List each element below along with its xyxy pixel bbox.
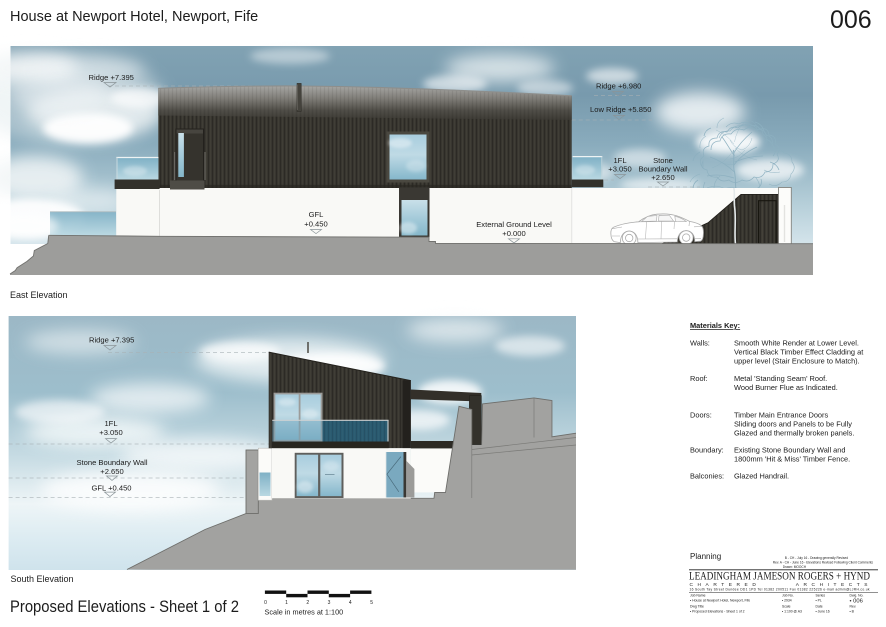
svg-text:1FL: 1FL bbox=[104, 419, 117, 428]
svg-text:External Ground Level: External Ground Level bbox=[476, 220, 552, 229]
svg-text:Boundary:: Boundary: bbox=[690, 446, 724, 455]
svg-text:Glazed and thermally broken pa: Glazed and thermally broken panels. bbox=[734, 429, 854, 438]
svg-text:GFL +0.450: GFL +0.450 bbox=[92, 484, 132, 493]
svg-text:• 1:100 @ A3: • 1:100 @ A3 bbox=[782, 610, 802, 614]
svg-text:South Elevation: South Elevation bbox=[11, 574, 74, 584]
svg-text:Series: Series bbox=[816, 594, 826, 598]
svg-text:Doors:: Doors: bbox=[690, 411, 712, 420]
svg-text:Smooth White Render at Lower L: Smooth White Render at Lower Level. bbox=[734, 339, 859, 348]
svg-text:B - CH - July 16 - Drawing ge: B - CH - July 16 - Drawing generally Rev… bbox=[785, 556, 848, 560]
svg-text:+3.050: +3.050 bbox=[99, 428, 122, 437]
svg-text:Job No.: Job No. bbox=[782, 594, 794, 598]
svg-text:• House at Newport Hotel, New: • House at Newport Hotel, Newport, Fife bbox=[690, 599, 750, 603]
svg-text:Sliding doors and Panels to be: Sliding doors and Panels to be Fully bbox=[734, 420, 852, 429]
svg-text:upper level (Stair Enclosure t: upper level (Stair Enclosure to Match). bbox=[734, 357, 860, 366]
svg-text:Scale: Scale bbox=[782, 605, 791, 609]
svg-text:006: 006 bbox=[830, 6, 872, 34]
svg-text:Proposed Elevations - Sheet 1: Proposed Elevations - Sheet 1 of 2 bbox=[10, 598, 239, 616]
svg-text:+0.450: +0.450 bbox=[304, 220, 327, 229]
svg-text:3: 3 bbox=[328, 600, 331, 606]
svg-text:+3.050: +3.050 bbox=[608, 165, 631, 174]
svg-text:Wood Burner Flue as Indicated.: Wood Burner Flue as Indicated. bbox=[734, 383, 838, 392]
svg-text:• 006: • 006 bbox=[850, 599, 863, 605]
svg-text:Ridge +7.395: Ridge +7.395 bbox=[89, 73, 134, 82]
svg-text:Glazed Handrail.: Glazed Handrail. bbox=[734, 472, 789, 481]
svg-text:Balconies:: Balconies: bbox=[690, 472, 724, 481]
svg-text:Ridge +6.980: Ridge +6.980 bbox=[596, 82, 641, 91]
svg-text:LEADINGHAM JAMESON ROGERS + HY: LEADINGHAM JAMESON ROGERS + HYND bbox=[689, 569, 870, 583]
svg-text:Low Ridge +5.850: Low Ridge +5.850 bbox=[590, 105, 651, 114]
svg-text:1: 1 bbox=[285, 600, 288, 606]
svg-text:Dwg Title: Dwg Title bbox=[690, 605, 704, 609]
svg-text:East Elevation: East Elevation bbox=[10, 290, 68, 300]
svg-text:4: 4 bbox=[349, 600, 352, 606]
svg-text:+0.000: +0.000 bbox=[502, 229, 525, 238]
svg-text:• 2934: • 2934 bbox=[782, 599, 792, 603]
svg-text:• B: • B bbox=[850, 610, 855, 614]
svg-text:Roof:: Roof: bbox=[690, 374, 708, 383]
svg-text:Date: Date bbox=[816, 605, 823, 609]
svg-text:Materials Key:: Materials Key: bbox=[690, 321, 740, 330]
svg-text:• June 16: • June 16 bbox=[816, 610, 830, 614]
svg-text:0: 0 bbox=[264, 600, 267, 606]
svg-text:Scale in metres at 1:100: Scale in metres at 1:100 bbox=[265, 608, 344, 617]
svg-text:5: 5 bbox=[370, 600, 373, 606]
svg-text:Timber Main Entrance Doors: Timber Main Entrance Doors bbox=[734, 411, 828, 420]
svg-text:Vertical Black Timber Effect C: Vertical Black Timber Effect Cladding at bbox=[734, 348, 863, 357]
svg-text:Metal 'Standing Seam' Roof.: Metal 'Standing Seam' Roof. bbox=[734, 374, 827, 383]
svg-text:2: 2 bbox=[306, 600, 309, 606]
svg-text:• Proposed Elevations - Sheet: • Proposed Elevations - Sheet 1 of 2 bbox=[690, 610, 745, 614]
svg-text:16 South Tay Street Dundee DD: 16 South Tay Street Dundee DD1 1PD Tel 0… bbox=[690, 588, 870, 592]
svg-text:GFL: GFL bbox=[309, 210, 324, 219]
svg-text:Job Name: Job Name bbox=[690, 594, 706, 598]
svg-text:Stone Boundary Wall: Stone Boundary Wall bbox=[76, 458, 147, 467]
svg-text:+2.650: +2.650 bbox=[100, 467, 123, 476]
svg-text:House at Newport Hotel, Newpor: House at Newport Hotel, Newport, Fife bbox=[10, 9, 258, 25]
svg-text:Planning: Planning bbox=[690, 552, 721, 561]
svg-text:Dwg. No.: Dwg. No. bbox=[850, 594, 864, 598]
svg-text:Walls:: Walls: bbox=[690, 339, 710, 348]
svg-text:Rev. A - CH - June 16 - Elevat: Rev. A - CH - June 16 - Elevations Revis… bbox=[773, 561, 874, 565]
svg-text:• PL: • PL bbox=[816, 599, 822, 603]
svg-text:Existing Stone Boundary Wall a: Existing Stone Boundary Wall and bbox=[734, 446, 845, 455]
svg-text:+2.650: +2.650 bbox=[651, 173, 674, 182]
svg-text:1800mm 'Hit & Miss' Timber Fen: 1800mm 'Hit & Miss' Timber Fence. bbox=[734, 455, 850, 464]
svg-text:Ridge +7.395: Ridge +7.395 bbox=[89, 336, 134, 345]
svg-text:Rev.: Rev. bbox=[850, 605, 857, 609]
